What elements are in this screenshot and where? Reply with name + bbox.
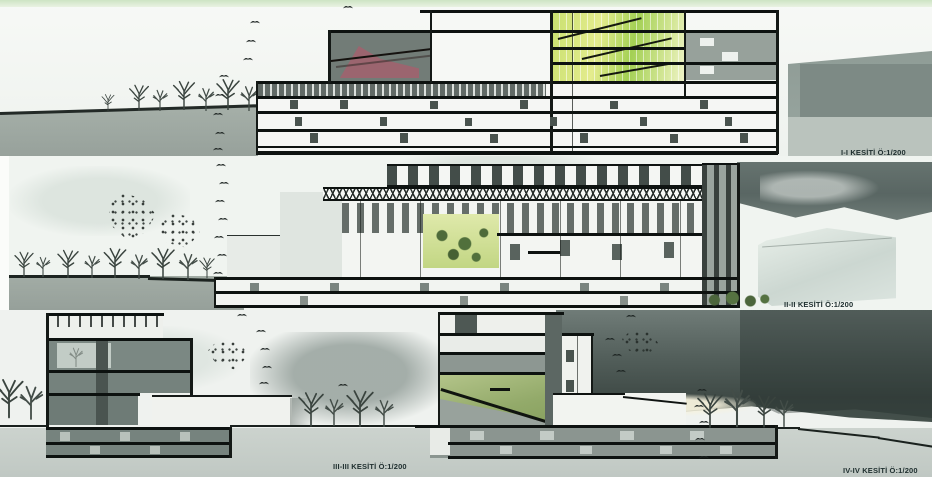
- window-stub: [610, 101, 618, 109]
- column-line: [550, 10, 553, 152]
- basement-stub: [660, 446, 672, 454]
- floor-slab: [552, 62, 778, 65]
- section-label: III-III KESİTİ Ö:1/200: [333, 462, 407, 471]
- floor-slab: [448, 456, 778, 459]
- column-line: [214, 277, 216, 308]
- bird-icon: [216, 162, 226, 168]
- bird-icon: [626, 313, 636, 319]
- window-stub: [295, 117, 302, 126]
- s3-floor: [46, 373, 191, 393]
- floor-slab: [256, 151, 778, 155]
- basement-stub: [720, 446, 732, 454]
- floor-slab: [256, 111, 778, 114]
- upper-floor-block: [430, 13, 552, 81]
- s4-basement-light-bay: [430, 428, 450, 455]
- basement-stub: [620, 296, 628, 305]
- presentation-board: I-I KESİTİ Ö:1/200: [0, 0, 932, 477]
- column-line: [438, 312, 440, 425]
- basement-stub: [470, 431, 484, 440]
- window-band-dark: [342, 203, 738, 233]
- section-2-panel: II-II KESİTİ Ö:1/200: [0, 156, 932, 310]
- column-line: [680, 201, 681, 277]
- bird-icon: [213, 111, 223, 117]
- section-3-4-panel: III-III KESİTİ Ö:1/200: [0, 310, 932, 477]
- floor-slab: [420, 10, 778, 13]
- window-stub: [664, 242, 674, 258]
- storefront-glazing: [256, 84, 546, 96]
- tree-icon: [720, 384, 754, 428]
- clerestory-band: [387, 164, 703, 187]
- bench-mark: [490, 388, 510, 391]
- window-stub: [380, 117, 387, 126]
- tree-icon: [322, 395, 346, 427]
- window-opening: [700, 38, 714, 46]
- column-line: [328, 30, 331, 83]
- floor-slab: [214, 305, 740, 308]
- bird-icon: [213, 146, 223, 152]
- tree-icon: [128, 252, 150, 279]
- column-line: [737, 163, 740, 308]
- bird-icon: [260, 346, 270, 352]
- window-stub: [550, 117, 557, 126]
- window-opening: [700, 66, 714, 74]
- column-line: [229, 427, 232, 458]
- column-line: [360, 201, 361, 277]
- floor-slab: [256, 81, 778, 84]
- hill-dark-block: [800, 64, 932, 118]
- column-line: [620, 201, 621, 277]
- basement-stub: [90, 446, 100, 454]
- s3-top-floor-mullions: [46, 316, 163, 327]
- tree-icon: [126, 83, 152, 111]
- roof-truss-band: [323, 187, 703, 201]
- floor-slab: [438, 372, 560, 375]
- tree-icon: [372, 397, 396, 427]
- s3-glazed-wing: [152, 395, 292, 425]
- bird-icon: [215, 198, 225, 204]
- window-stub: [740, 133, 748, 143]
- window-stub: [640, 117, 647, 126]
- bird-icon: [605, 336, 615, 342]
- floor-slab: [46, 338, 193, 341]
- service-tower: [702, 163, 738, 308]
- tree-icon: [772, 396, 796, 428]
- bird-icon: [262, 364, 272, 370]
- window-stub: [310, 133, 318, 143]
- bird-icon: [338, 382, 348, 388]
- tree-icon: [82, 253, 102, 278]
- tree-icon: [149, 246, 177, 279]
- basement-stub: [500, 446, 512, 454]
- column-line: [775, 425, 778, 459]
- roof-slab: [46, 313, 164, 316]
- left-mid-block: [280, 192, 342, 277]
- pavilion-roof-line: [553, 393, 625, 395]
- basement-stub: [60, 432, 70, 441]
- bird-icon: [213, 270, 223, 276]
- tree-icon: [170, 79, 198, 110]
- bird-icon: [246, 38, 256, 44]
- bird-icon: [699, 419, 709, 425]
- tree-icon: [55, 248, 81, 278]
- bird-icon: [250, 19, 260, 25]
- window-stub: [290, 100, 298, 109]
- bird-icon: [256, 328, 266, 334]
- column-line: [776, 10, 779, 154]
- column-line: [684, 10, 686, 96]
- column-line: [560, 201, 561, 277]
- column-line: [500, 201, 501, 277]
- basement-stub: [620, 431, 634, 440]
- bird-icon: [243, 56, 253, 62]
- s3-core: [96, 341, 108, 425]
- window-stub: [670, 134, 678, 143]
- basement-stub: [150, 446, 160, 454]
- column-line: [572, 10, 573, 152]
- s4-floor: [438, 336, 562, 352]
- section-1-panel: I-I KESİTİ Ö:1/200: [0, 0, 932, 156]
- window-stub: [510, 244, 520, 260]
- floor-slab: [46, 393, 140, 396]
- window-stub: [580, 133, 588, 143]
- window-stub: [520, 100, 528, 109]
- floor-slab: [328, 30, 778, 33]
- basement-stub: [580, 446, 592, 454]
- window-stub: [560, 240, 570, 256]
- floor-slab: [438, 352, 562, 355]
- tree-icon: [16, 376, 46, 426]
- floor-slab: [46, 370, 193, 373]
- floor-slab: [46, 455, 232, 458]
- s3-floor: [46, 395, 138, 425]
- basement-stub: [300, 296, 308, 305]
- bird-icon: [697, 387, 707, 393]
- section-label: IV-IV KESİTİ Ö:1/200: [843, 466, 918, 475]
- window-stub: [400, 133, 408, 143]
- window-opening: [722, 52, 738, 61]
- bird-icon: [699, 454, 709, 460]
- column-line: [420, 201, 421, 277]
- floor-slab: [46, 427, 232, 430]
- floor-slab: [256, 96, 778, 99]
- planted-court: [423, 214, 499, 268]
- tree-icon: [34, 255, 52, 277]
- left-margin-strip: [0, 156, 9, 310]
- bird-icon: [237, 312, 247, 318]
- basement-stub: [180, 432, 190, 441]
- tree-icon: [176, 251, 200, 280]
- tree-icon: [12, 250, 36, 277]
- bird-icon: [259, 380, 269, 386]
- section-label: II-II KESİTİ Ö:1/200: [784, 300, 853, 309]
- basement-stub: [540, 431, 554, 440]
- bird-icon: [219, 73, 229, 79]
- column-line: [256, 81, 258, 154]
- interior-slab-mark: [528, 251, 562, 254]
- bird-icon: [695, 436, 705, 442]
- bird-icon: [215, 92, 225, 98]
- window-stub: [490, 134, 498, 143]
- window-stub: [465, 118, 472, 126]
- bird-icon: [218, 216, 228, 222]
- shrubs: [700, 290, 772, 310]
- tree-icon: [100, 93, 116, 111]
- bird-icon: [214, 234, 224, 240]
- bird-icon: [612, 352, 622, 358]
- floor-slab: [46, 442, 232, 445]
- window-stub: [700, 100, 708, 109]
- window-stub: [430, 101, 438, 109]
- window-stub: [340, 100, 348, 109]
- s4-floor: [438, 355, 562, 372]
- tree-icon: [66, 346, 86, 367]
- floor-slab: [448, 442, 778, 445]
- floor-slab: [214, 291, 740, 294]
- bird-icon: [694, 403, 704, 409]
- cloud-wisp: [760, 170, 880, 206]
- floor-slab: [256, 146, 778, 148]
- bird-icon: [616, 368, 626, 374]
- bird-icon: [219, 180, 229, 186]
- s4-glazed-pavilion: [553, 393, 686, 425]
- column-line: [430, 10, 432, 83]
- bird-icon: [217, 252, 227, 258]
- window-stub: [566, 350, 574, 362]
- tree-icon: [150, 88, 170, 111]
- floor-slab: [256, 129, 778, 132]
- window-stub: [566, 380, 574, 392]
- window-stub: [725, 117, 732, 126]
- bird-icon: [215, 130, 225, 136]
- tree-icon: [101, 246, 129, 278]
- basement-stub: [460, 296, 468, 305]
- green-header-strip: [0, 0, 932, 7]
- basement-stub: [120, 432, 130, 441]
- floor-slab: [214, 277, 740, 280]
- bird-icon: [343, 4, 353, 10]
